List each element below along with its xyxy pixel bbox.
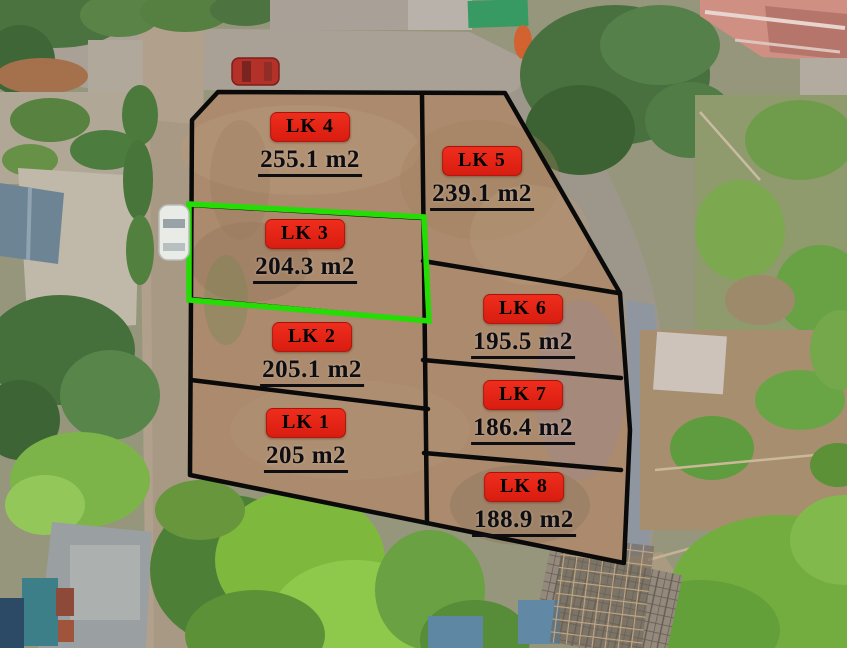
- gray-yard-light: [70, 545, 140, 620]
- white-car: [159, 205, 189, 260]
- dirt-patch: [0, 58, 88, 94]
- garden-dirt: [725, 275, 795, 325]
- brown-structure: [56, 588, 74, 616]
- brown-structure: [58, 620, 74, 642]
- blue-roof: [428, 616, 483, 648]
- trees: [60, 350, 160, 440]
- blue-roof: [0, 598, 24, 648]
- field-bush: [670, 416, 754, 480]
- hedge: [123, 140, 153, 220]
- aerial-photo: [0, 0, 847, 648]
- green-roof: [468, 0, 529, 28]
- bushes: [10, 98, 90, 142]
- roof-ridge: [28, 188, 30, 260]
- aerial-plot-map: LK 4 255.1 m2 LK 5 239.1 m2 LK 3 204.3 m…: [0, 0, 847, 648]
- teal-roof: [22, 578, 58, 646]
- hedge: [126, 215, 154, 285]
- concrete: [270, 0, 415, 30]
- concrete: [800, 58, 847, 98]
- concrete-pad: [653, 332, 727, 395]
- blue-gray-roof: [0, 183, 64, 264]
- red-car: [232, 58, 279, 85]
- building-roof: [408, 0, 472, 30]
- tree-canopy: [155, 480, 245, 540]
- hedge: [122, 85, 158, 145]
- garden-green: [695, 180, 785, 280]
